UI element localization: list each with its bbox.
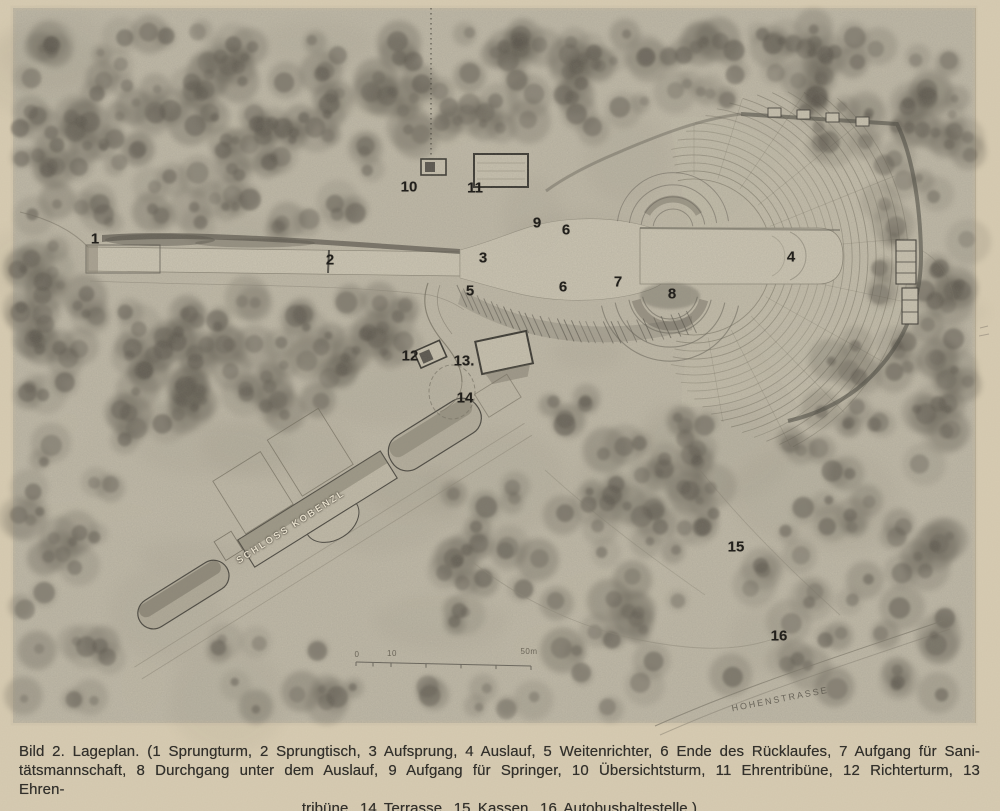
plan-marker-1: 1 <box>91 231 99 248</box>
scanned-book-page: 1 2 3 4 5 6 6 7 8 9 10 11 12 13. 14 15 1… <box>0 0 1000 811</box>
plan-marker-7: 7 <box>614 274 622 291</box>
scale-bar-label-50m: 50m <box>520 647 537 656</box>
caption-line-1: Bild 2. Lageplan. (1 Sprungturm, 2 Sprun… <box>19 742 980 761</box>
plan-marker-13: 13. <box>454 353 475 370</box>
figure-caption: Bild 2. Lageplan. (1 Sprungturm, 2 Sprun… <box>19 742 980 811</box>
plan-marker-12: 12 <box>402 348 419 365</box>
plan-marker-11: 11 <box>467 180 483 197</box>
scale-bar-label-0: 0 <box>355 650 360 659</box>
plan-marker-8: 8 <box>668 286 676 303</box>
plan-marker-6-upper: 6 <box>562 222 570 239</box>
plan-marker-10: 10 <box>401 179 418 196</box>
plan-marker-5: 5 <box>466 283 474 300</box>
plan-marker-16: 16 <box>771 628 788 645</box>
scale-bar-label-10: 10 <box>387 649 397 658</box>
plan-marker-9: 9 <box>533 215 541 232</box>
plan-marker-2: 2 <box>326 252 334 269</box>
site-plan-figure <box>0 0 1000 811</box>
caption-line-3: tribüne, 14 Terrasse, 15 Kassen, 16 Auto… <box>19 799 980 811</box>
paper-grain <box>0 0 1000 811</box>
plan-marker-6-lower: 6 <box>559 279 567 296</box>
plan-marker-4: 4 <box>787 249 795 266</box>
plan-marker-3: 3 <box>479 250 487 267</box>
plan-marker-15: 15 <box>728 539 745 556</box>
caption-line-2: tätsmannschaft, 8 Durchgang unter dem Au… <box>19 761 980 799</box>
plan-marker-14: 14 <box>457 390 474 407</box>
